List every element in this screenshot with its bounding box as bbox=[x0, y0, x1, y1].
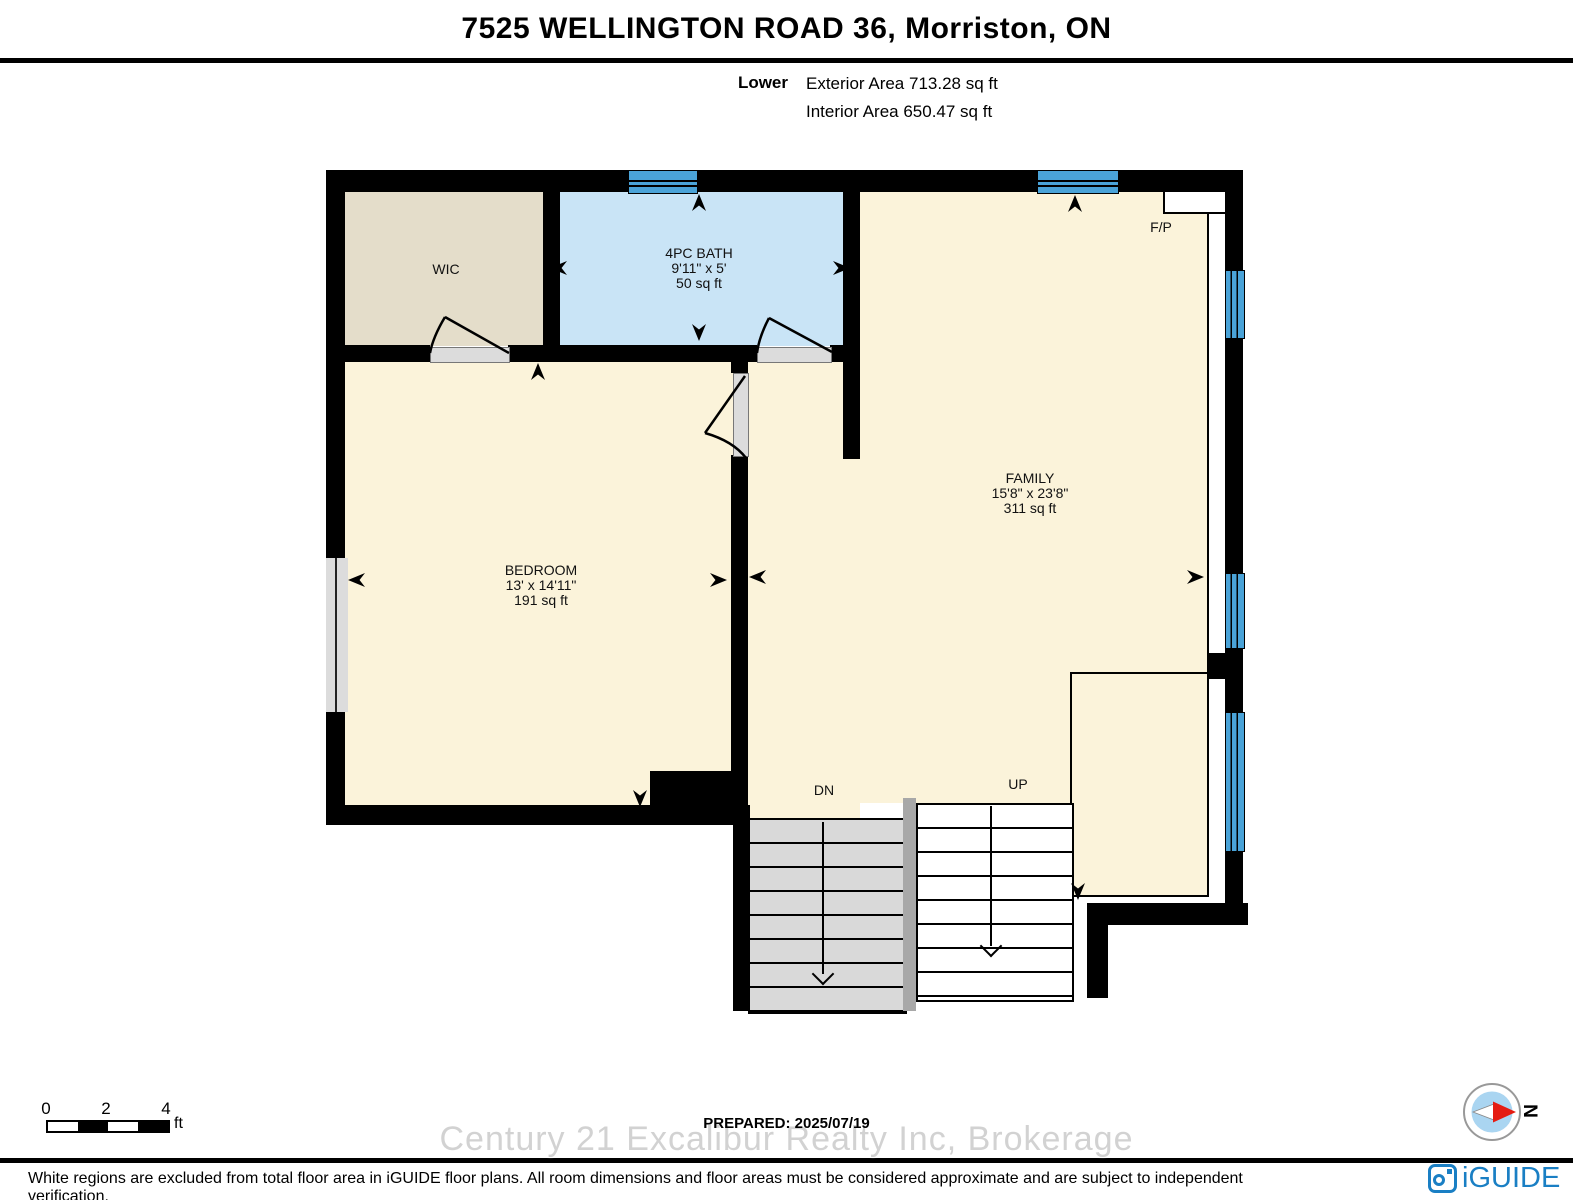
iguide-brand-text: iGUIDE bbox=[1462, 1162, 1560, 1195]
room-label-family: FAMILY 15'8" x 23'8" 311 sq ft bbox=[930, 471, 1130, 516]
wall bbox=[1087, 903, 1108, 998]
window bbox=[628, 170, 698, 194]
room-family-extension bbox=[1070, 672, 1209, 897]
room-label-bath: 4PC BATH 9'11" x 5' 50 sq ft bbox=[599, 246, 799, 291]
room-dimensions: 13' x 14'11" bbox=[441, 578, 641, 593]
room-name: WIC bbox=[432, 261, 459, 277]
stairs-down-label: DN bbox=[794, 783, 854, 798]
door-opening bbox=[430, 347, 510, 363]
wall bbox=[843, 170, 860, 459]
fireplace-niche bbox=[1163, 190, 1227, 214]
room-dimensions: 9'11" x 5' bbox=[599, 261, 799, 276]
stairs-down bbox=[748, 818, 907, 1014]
stairs-up bbox=[916, 803, 1074, 1002]
room-name: 4PC BATH bbox=[599, 246, 799, 261]
wall bbox=[326, 805, 750, 825]
window bbox=[1225, 270, 1245, 339]
wall bbox=[1087, 903, 1248, 925]
prepared-date: PREPARED: 2025/07/19 bbox=[0, 1115, 1573, 1132]
wall bbox=[508, 345, 560, 362]
disclaimer-text: White regions are excluded from total fl… bbox=[28, 1170, 1328, 1200]
iguide-notch-icon bbox=[1447, 1169, 1452, 1174]
floorplan-page: 7525 WELLINGTON ROAD 36, Morriston, ON L… bbox=[0, 0, 1573, 1200]
wall bbox=[1207, 653, 1243, 679]
room-label-bedroom: BEDROOM 13' x 14'11" 191 sq ft bbox=[441, 563, 641, 608]
room-label-wic: WIC bbox=[346, 262, 546, 277]
wall bbox=[560, 345, 757, 362]
iguide-camera-icon bbox=[1428, 1164, 1457, 1193]
wall bbox=[731, 455, 748, 805]
iguide-logo: iGUIDE bbox=[1428, 1162, 1560, 1195]
window bbox=[1225, 573, 1245, 649]
window bbox=[326, 558, 348, 712]
room-name: FAMILY bbox=[930, 471, 1130, 486]
stair-divider bbox=[903, 798, 916, 1011]
fireplace-label: F/P bbox=[1126, 220, 1196, 235]
iguide-lens-icon bbox=[1433, 1174, 1445, 1186]
room-hall bbox=[748, 361, 845, 461]
room-family-lower bbox=[748, 459, 860, 818]
door-opening bbox=[733, 373, 749, 457]
wall bbox=[731, 345, 748, 373]
stair-run-line bbox=[822, 822, 824, 974]
room-area: 191 sq ft bbox=[441, 593, 641, 608]
door-opening bbox=[757, 347, 832, 363]
wall bbox=[326, 192, 345, 558]
room-name: BEDROOM bbox=[441, 563, 641, 578]
window bbox=[1225, 712, 1245, 852]
wall bbox=[650, 771, 735, 807]
wall bbox=[326, 345, 430, 362]
floor-plan: WIC 4PC BATH 9'11" x 5' 50 sq ft FAMILY … bbox=[0, 0, 1573, 1060]
stairs-up-label: UP bbox=[988, 777, 1048, 792]
wall bbox=[733, 771, 748, 1011]
window bbox=[1037, 170, 1119, 194]
wall bbox=[1225, 337, 1243, 573]
room-area: 311 sq ft bbox=[930, 501, 1130, 516]
room-dimensions: 15'8" x 23'8" bbox=[930, 486, 1130, 501]
room-area: 50 sq ft bbox=[599, 276, 799, 291]
wall bbox=[1225, 192, 1243, 270]
stair-run-line bbox=[990, 806, 992, 946]
